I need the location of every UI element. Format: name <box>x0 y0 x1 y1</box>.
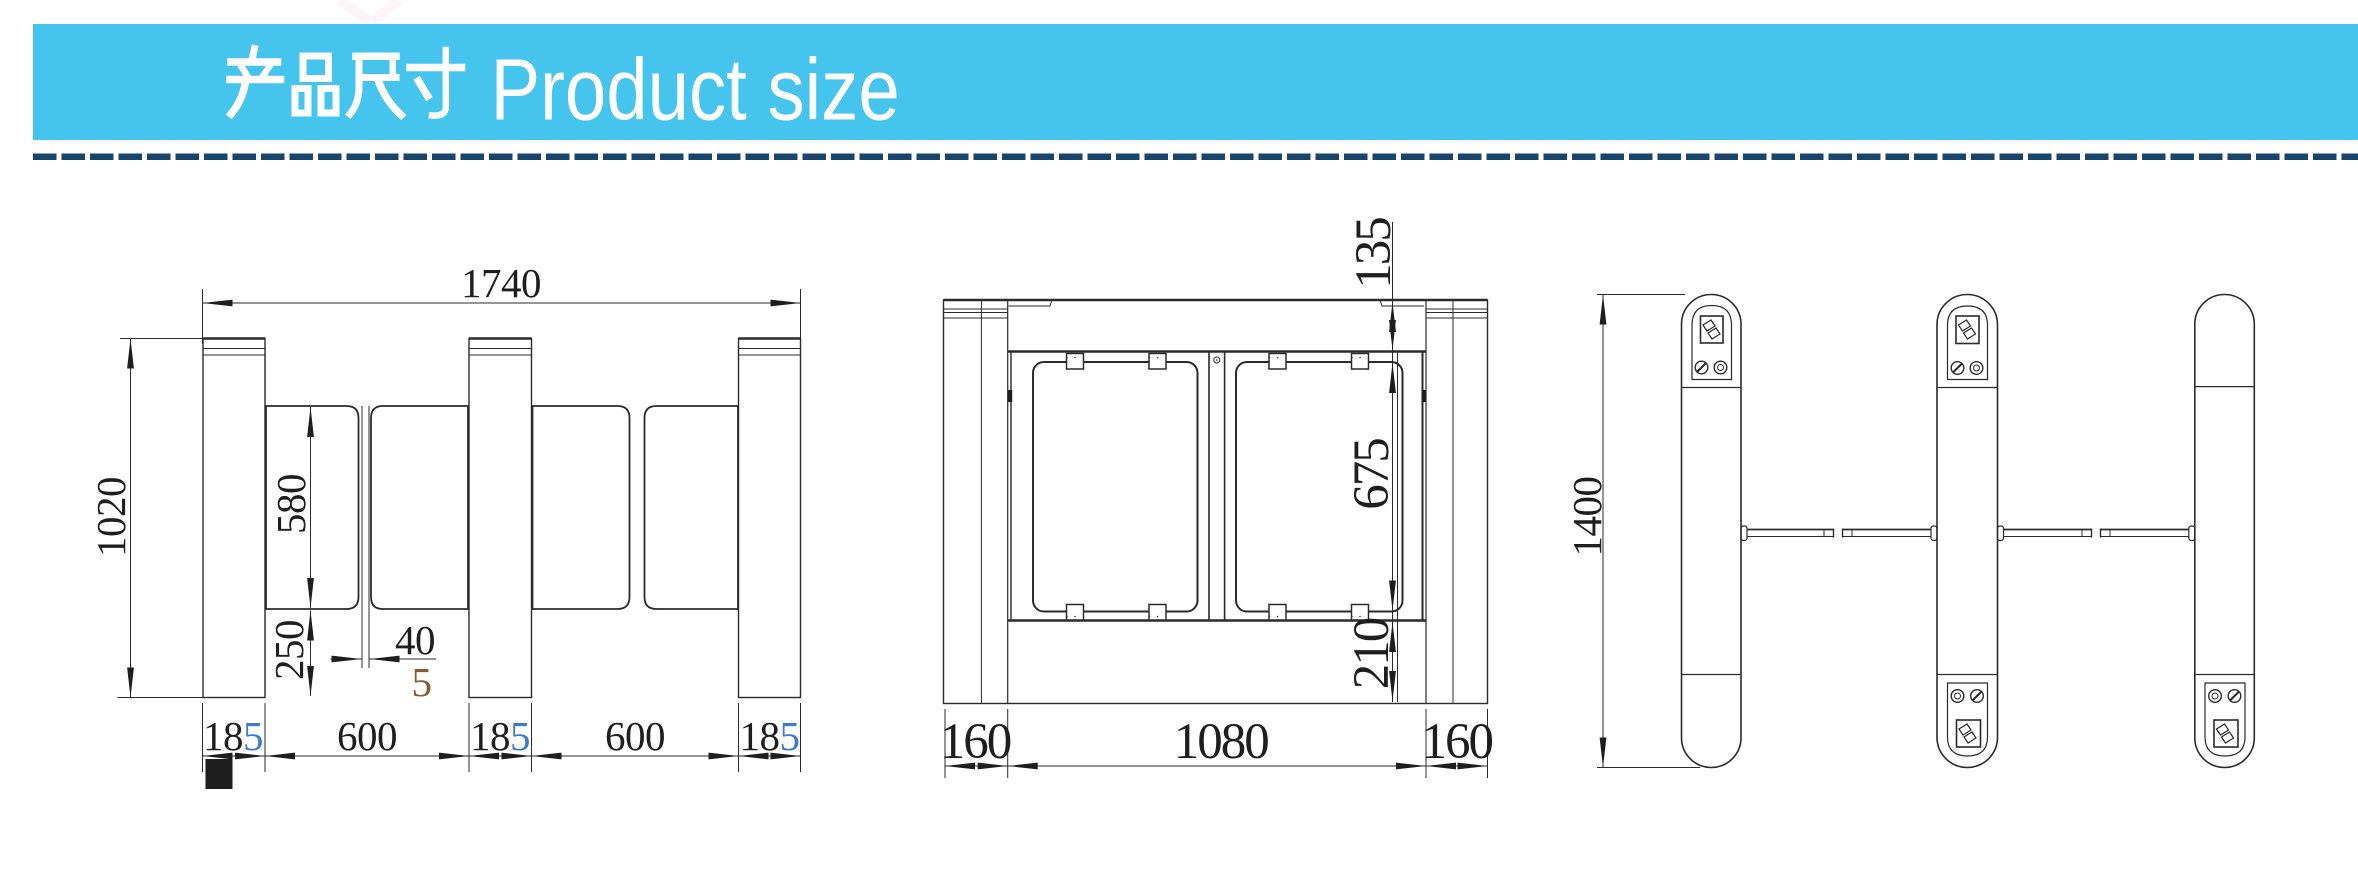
svg-text:Product size: Product size <box>491 42 900 139</box>
svg-text:1400: 1400 <box>1564 477 1610 557</box>
svg-text:160: 160 <box>940 714 1011 770</box>
svg-text:600: 600 <box>337 713 397 759</box>
svg-text:185: 185 <box>740 713 800 759</box>
svg-text:580: 580 <box>268 474 314 534</box>
svg-text:1020: 1020 <box>88 477 134 557</box>
svg-text:5: 5 <box>412 659 432 705</box>
svg-text:185: 185 <box>470 713 530 759</box>
svg-text:40: 40 <box>395 617 435 663</box>
svg-text:1080: 1080 <box>1174 714 1269 770</box>
svg-text:185: 185 <box>203 713 263 759</box>
svg-text:600: 600 <box>605 713 665 759</box>
svg-text:210: 210 <box>1344 618 1400 689</box>
svg-text:160: 160 <box>1421 714 1492 770</box>
svg-text:675: 675 <box>1344 439 1400 510</box>
svg-text:135: 135 <box>1346 218 1402 289</box>
svg-text:1740: 1740 <box>461 260 541 306</box>
svg-text:250: 250 <box>266 620 312 680</box>
